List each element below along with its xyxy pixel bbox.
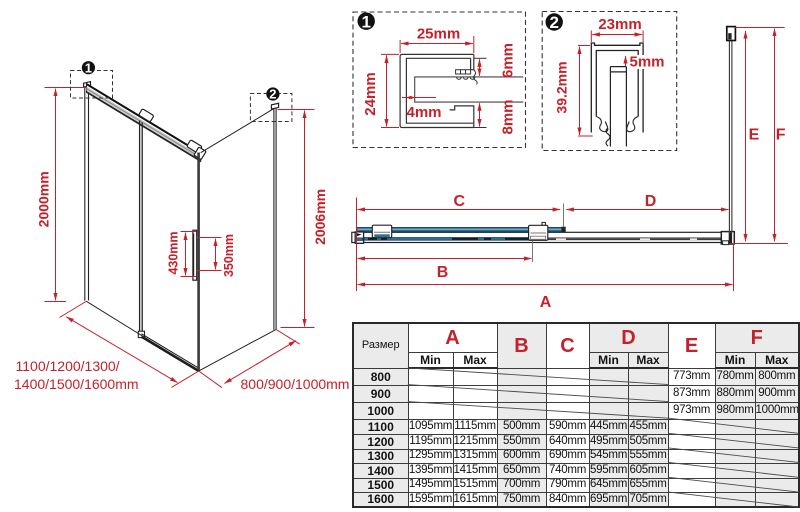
svg-text:2: 2 xyxy=(549,13,558,32)
svg-text:1: 1 xyxy=(85,60,92,75)
svg-text:E: E xyxy=(749,127,760,144)
svg-text:2006mm: 2006mm xyxy=(312,189,328,245)
svg-text:4mm: 4mm xyxy=(406,104,441,121)
svg-text:350mm: 350mm xyxy=(222,234,236,277)
svg-text:1100/1200/1300/: 1100/1200/1300/ xyxy=(16,358,120,374)
svg-text:F: F xyxy=(776,127,786,144)
svg-text:39.2mm: 39.2mm xyxy=(554,61,570,113)
svg-text:2: 2 xyxy=(269,87,276,102)
svg-text:5mm: 5mm xyxy=(629,54,664,71)
svg-text:B: B xyxy=(437,264,449,281)
svg-text:C: C xyxy=(454,193,466,210)
svg-text:430mm: 430mm xyxy=(166,231,180,274)
svg-text:D: D xyxy=(645,193,657,210)
svg-text:6mm: 6mm xyxy=(500,43,517,78)
svg-text:A: A xyxy=(540,294,552,311)
svg-text:1400/1500/1600mm: 1400/1500/1600mm xyxy=(14,376,139,392)
svg-text:800/900/1000mm: 800/900/1000mm xyxy=(241,376,350,392)
svg-text:8mm: 8mm xyxy=(500,99,517,134)
svg-text:25mm: 25mm xyxy=(417,26,460,43)
svg-text:23mm: 23mm xyxy=(598,16,641,33)
svg-text:24mm: 24mm xyxy=(362,72,379,115)
svg-text:2000mm: 2000mm xyxy=(36,171,52,227)
svg-text:1: 1 xyxy=(361,12,370,31)
